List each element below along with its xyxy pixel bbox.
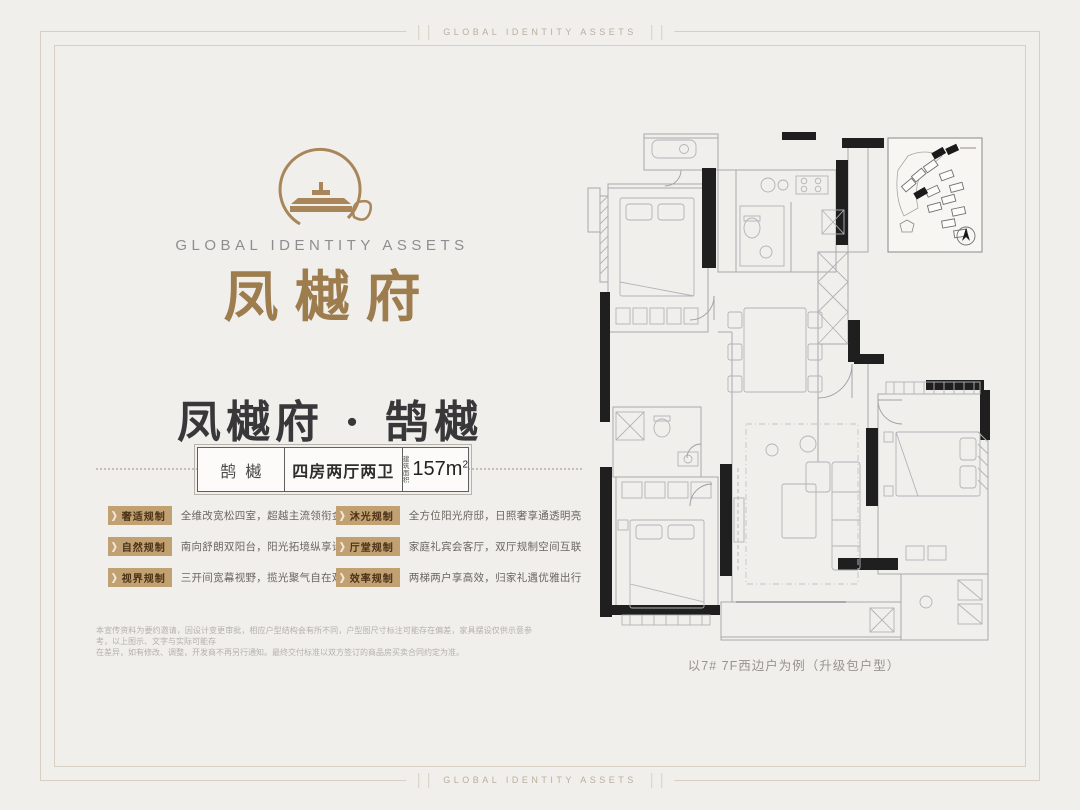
page-title: 凤樾府 · 鹄樾 — [90, 386, 570, 450]
brand-chinese-name: 凤樾府 — [92, 252, 552, 332]
poster-page: GLOBAL IDENTITY ASSETS GLOBAL IDENTITY A… — [0, 0, 1080, 810]
feature-desc: 三开间宽幕视野，揽光聚气自在观景 — [181, 570, 354, 585]
badge-arrow-icon: ❯ — [339, 510, 347, 521]
feature-badge: ❯自然规制 — [108, 537, 172, 556]
spec-area-label: 建筑 面积 — [403, 456, 410, 484]
frame-tick-right-b — [651, 773, 662, 788]
spec-area: 建筑 面积 157m2 — [403, 448, 468, 491]
feature-tag: 沐光规制 — [350, 508, 394, 523]
feature-desc: 全维改宽松四室，超越主流领衔金陵 — [181, 508, 354, 523]
feature-row: ❯厅堂规制 家庭礼宾会客厅，双厅规制空间互联 — [336, 537, 582, 555]
feature-tag: 奢适规制 — [122, 508, 166, 523]
feature-row: ❯视界规制 三开间宽幕视野，揽光聚气自在观景 — [108, 568, 354, 586]
feature-badge: ❯厅堂规制 — [336, 537, 400, 556]
spec-area-number: 157m — [412, 458, 462, 480]
badge-arrow-icon: ❯ — [111, 572, 119, 583]
frame-top-text: GLOBAL IDENTITY ASSETS — [443, 27, 637, 37]
entry-door-arc — [818, 364, 852, 398]
feature-row: ❯沐光规制 全方位阳光府邸，日照奢享通透明亮 — [336, 506, 582, 524]
frame-tick-left-b — [418, 773, 429, 788]
feature-badge: ❯效率规制 — [336, 568, 400, 587]
feature-column-right: ❯沐光规制 全方位阳光府邸，日照奢享通透明亮 ❯厅堂规制 家庭礼宾会客厅，双厅规… — [336, 506, 582, 599]
badge-arrow-icon: ❯ — [111, 541, 119, 552]
feature-row: ❯奢适规制 全维改宽松四室，超越主流领衔金陵 — [108, 506, 354, 524]
frame-tick-left — [418, 25, 429, 40]
feature-tag: 自然规制 — [122, 539, 166, 554]
badge-arrow-icon: ❯ — [339, 572, 347, 583]
spec-area-label-2: 面积 — [403, 470, 410, 484]
badge-arrow-icon: ❯ — [111, 510, 119, 521]
frame-top-label-band: GLOBAL IDENTITY ASSETS — [406, 24, 674, 40]
spec-series-name: 鹄樾 — [198, 448, 285, 491]
spec-area-value: 157m2 — [412, 458, 468, 481]
feature-row: ❯效率规制 两梯两户享高效，归家礼遇优雅出行 — [336, 568, 582, 586]
spec-layout: 四房两厅两卫 — [285, 448, 403, 491]
floor-plan-caption: 以7# 7F西边户为例（升级包户型） — [586, 655, 1002, 674]
feature-tag: 效率规制 — [350, 570, 394, 585]
feature-badge: ❯奢适规制 — [108, 506, 172, 525]
feature-badge: ❯沐光规制 — [336, 506, 400, 525]
badge-arrow-icon: ❯ — [339, 541, 347, 552]
disclaimer-text: 本宣传资料为要约邀请，因设计变更审批，相应户型结构会有所不同，户型图尺寸标注可能… — [96, 625, 532, 658]
feature-desc: 南向舒朗双阳台，阳光拓境纵享诗意 — [181, 539, 354, 554]
feature-desc: 两梯两户享高效，归家礼遇优雅出行 — [409, 570, 582, 585]
frame-bottom-label-band: GLOBAL IDENTITY ASSETS — [406, 772, 674, 788]
feature-tag: 厅堂规制 — [350, 539, 394, 554]
spec-area-sup: 2 — [462, 459, 468, 470]
feature-tag: 视界规制 — [122, 570, 166, 585]
disclaimer-line-1: 本宣传资料为要约邀请，因设计变更审批，相应户型结构会有所不同，户型图尺寸标注可能… — [96, 625, 532, 647]
floor-plan — [586, 132, 1002, 662]
feature-badge: ❯视界规制 — [108, 568, 172, 587]
site-plan-inset — [888, 138, 982, 252]
feature-desc: 家庭礼宾会客厅，双厅规制空间互联 — [409, 539, 582, 554]
disclaimer-line-2: 在差异，如有修改、调整，开发商不再另行通知。最终交付标准以双方签订的商品房买卖合… — [96, 647, 532, 658]
frame-tick-right — [651, 25, 662, 40]
feature-desc: 全方位阳光府邸，日照奢享通透明亮 — [409, 508, 582, 523]
brand-emblem-icon — [262, 140, 380, 236]
unit-spec-box: 鹄樾 四房两厅两卫 建筑 面积 157m2 — [197, 447, 469, 492]
feature-row: ❯自然规制 南向舒朗双阳台，阳光拓境纵享诗意 — [108, 537, 354, 555]
frame-bottom-text: GLOBAL IDENTITY ASSETS — [443, 775, 637, 785]
spec-area-label-1: 建筑 — [403, 456, 410, 470]
feature-column-left: ❯奢适规制 全维改宽松四室，超越主流领衔金陵 ❯自然规制 南向舒朗双阳台，阳光拓… — [108, 506, 354, 599]
